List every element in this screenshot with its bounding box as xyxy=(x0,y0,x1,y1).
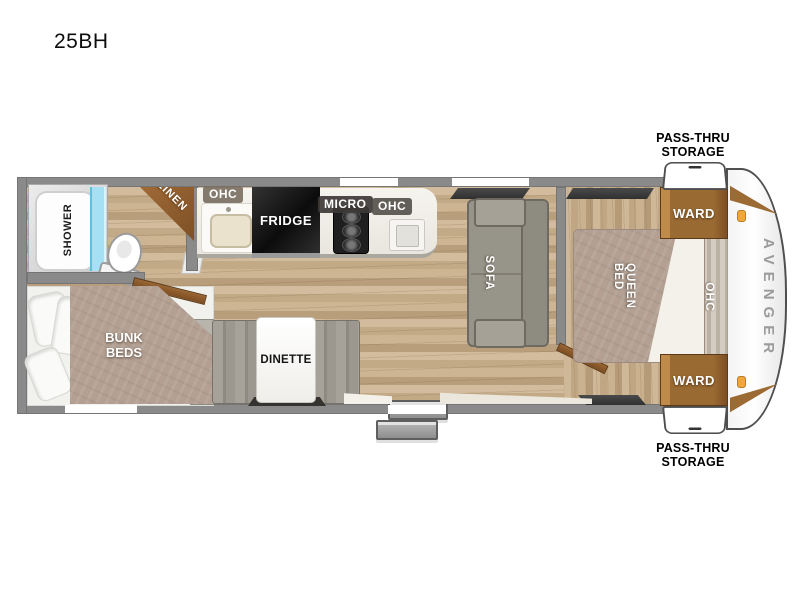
bathroom-wall xyxy=(27,272,145,284)
sink-basin xyxy=(210,214,252,248)
sofa-label: SOFA xyxy=(483,255,495,290)
kitchen-sink-secondary xyxy=(389,219,425,251)
pass-thru-storage-label-bottom: PASS-THRU STORAGE xyxy=(626,441,760,469)
dinette-bench-right xyxy=(313,320,360,404)
front-cap: AVENGER xyxy=(726,168,787,430)
burner-icon xyxy=(342,238,361,252)
dinette-bench-left xyxy=(212,320,259,404)
marker-light-icon xyxy=(737,210,746,222)
ward-label: WARD xyxy=(673,206,715,221)
burner-icon xyxy=(342,224,361,238)
shower-label: SHOWER xyxy=(62,204,74,257)
refrigerator: FRIDGE xyxy=(252,187,320,258)
handle-icon xyxy=(688,166,701,168)
kitchen-sink xyxy=(201,203,257,253)
dinette-table: DINETTE xyxy=(256,317,316,403)
entry-step-lower xyxy=(376,420,438,440)
model-number-label: 25BH xyxy=(54,30,109,54)
sofa-arm xyxy=(474,198,526,227)
ohc-label-bedroom: OHC xyxy=(703,282,717,312)
shower-stall: SHOWER xyxy=(28,184,108,276)
marker-light-icon xyxy=(737,376,746,388)
cooktop-stove xyxy=(333,206,369,254)
sofa-seam xyxy=(471,273,522,275)
floorplan-page: 25BH SHOWER LINEN BUNK BEDS xyxy=(0,0,800,600)
window-gap-sofa xyxy=(452,178,529,186)
bedroom-partition-wall xyxy=(556,187,566,345)
sofa: SOFA xyxy=(467,199,549,347)
brand-label: AVENGER xyxy=(760,238,777,360)
wardrobe-top: WARD xyxy=(660,187,728,239)
microwave-label: MICRO xyxy=(318,196,373,213)
ohc-label-kitchen-left: OHC xyxy=(203,186,243,203)
handle-icon xyxy=(688,427,701,429)
pass-thru-storage-door-bottom xyxy=(662,406,728,434)
queen-bed: QUEEN BED xyxy=(573,229,705,363)
pass-thru-storage-label-top: PASS-THRU STORAGE xyxy=(626,131,760,159)
sofa-arm xyxy=(474,319,526,348)
sink-basin xyxy=(396,225,419,247)
ohc-label-kitchen-right: OHC xyxy=(372,198,412,215)
faucet-icon xyxy=(226,207,231,212)
ward-label: WARD xyxy=(673,373,715,388)
bunk-beds-label: BUNK BEDS xyxy=(105,330,143,360)
queen-bed-label: QUEEN BED xyxy=(612,263,636,329)
window-gap-kitchen xyxy=(340,178,398,186)
entry-door-opening xyxy=(388,405,446,414)
fridge-label: FRIDGE xyxy=(260,213,312,228)
window-bedroom-top xyxy=(566,188,654,199)
pass-thru-storage-door-top xyxy=(662,162,728,190)
bed-sheet-fold xyxy=(648,230,704,362)
exterior-wall-rear xyxy=(17,177,27,414)
window-gap-bunk xyxy=(65,405,137,413)
wardrobe-bottom: WARD xyxy=(660,354,728,406)
dinette-label: DINETTE xyxy=(260,354,311,366)
